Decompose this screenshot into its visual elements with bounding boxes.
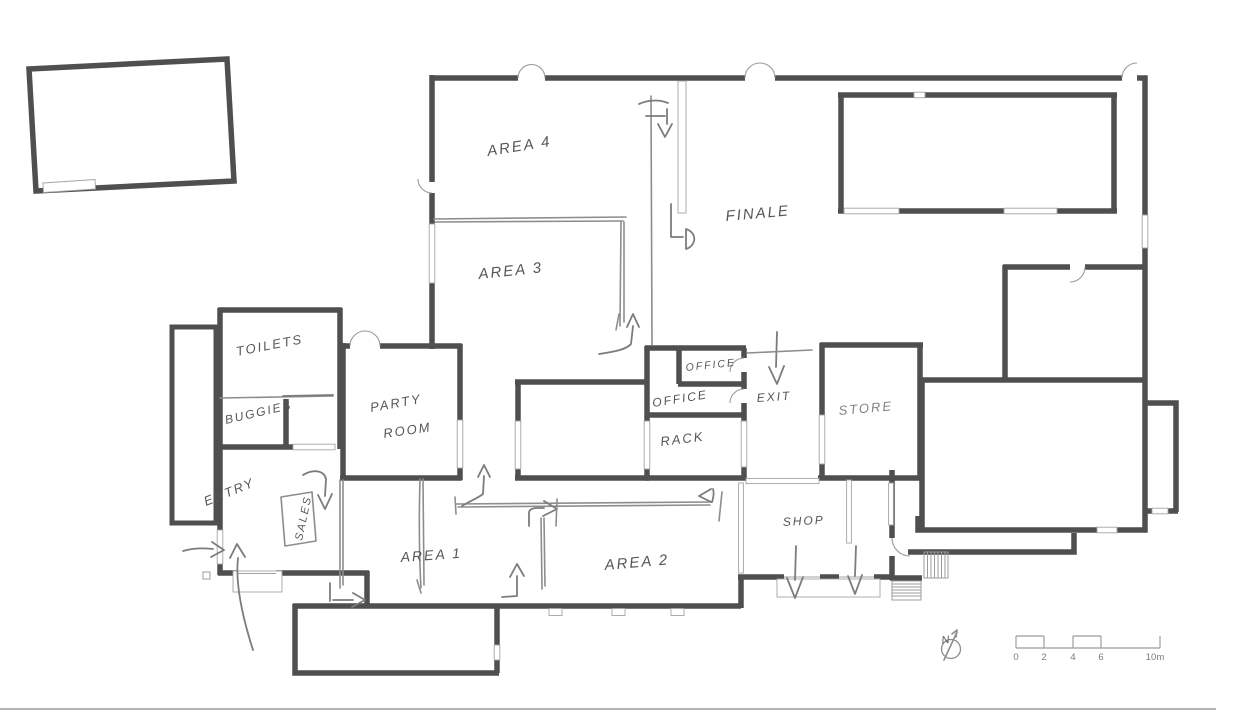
room-label-store: STORE — [838, 398, 894, 418]
scale-bar: 0 2 4 6 10m — [1013, 636, 1164, 663]
north-arrow-label: N — [941, 634, 953, 647]
marker-square — [203, 572, 210, 579]
room-label-toilets: TOILETS — [235, 331, 305, 359]
scale-label-10m: 10m — [1146, 652, 1165, 663]
room-labels: AREA 4 AREA 3 FINALE TOILETS BUGGIES PAR… — [202, 133, 894, 574]
arrow-up-corridor — [462, 476, 484, 506]
arrow-up-area1 — [502, 576, 517, 597]
buggies-divider-sketch — [220, 396, 333, 398]
room-label-rack: RACK — [660, 429, 706, 449]
room-label-area2: AREA 2 — [603, 551, 670, 574]
scale-label-4: 4 — [1070, 652, 1075, 663]
room-label-area3: AREA 3 — [477, 259, 544, 283]
scale-label-0: 0 — [1013, 652, 1018, 663]
scale-label-2: 2 — [1041, 652, 1046, 663]
arrow-down-shop-2 — [855, 546, 856, 576]
arrow-left-route — [699, 489, 711, 502]
arrow-down-shop-1 — [795, 546, 796, 580]
room-label-shop: SHOP — [782, 513, 825, 529]
walls — [218, 75, 1178, 673]
shop-porch — [777, 579, 880, 597]
north-arrow: N — [941, 630, 961, 660]
room-label-party-1: PARTY — [369, 391, 423, 415]
arrow-finale-top — [639, 101, 668, 105]
area3-sketch-line — [434, 217, 626, 219]
sketch-partition-a — [419, 479, 421, 588]
arrow-down-exit — [776, 332, 777, 367]
floor-plan-drawing: AREA 4 AREA 3 FINALE TOILETS BUGGIES PAR… — [0, 0, 1240, 714]
sketch-partition-b — [541, 518, 542, 589]
finale-partition — [678, 81, 686, 213]
room-label-sales: SALES — [293, 495, 314, 542]
room-label-entry: ENTRY — [202, 475, 257, 509]
route-line — [456, 502, 712, 504]
room-label-office-lower: OFFICE — [651, 387, 709, 410]
entry-vestibule — [233, 571, 282, 592]
room-label-area1: AREA 1 — [399, 545, 462, 565]
arrow-down-finale — [658, 124, 672, 137]
door-arcs — [350, 63, 1137, 556]
room-label-exit: EXIT — [756, 389, 792, 405]
scale-label-6: 6 — [1098, 652, 1103, 663]
arrow-right-entry — [183, 548, 213, 551]
pencil-annotations — [183, 96, 862, 650]
outbuilding — [29, 59, 234, 193]
room-label-party-2: ROOM — [382, 419, 432, 441]
room-label-office-upper: OFFICE — [685, 357, 736, 374]
floor-plan-canvas: AREA 4 AREA 3 FINALE TOILETS BUGGIES PAR… — [0, 0, 1240, 714]
room-label-buggies: BUGGIES — [224, 398, 294, 427]
finale-divider-sketch — [651, 96, 652, 345]
room-label-area4: AREA 4 — [485, 133, 553, 160]
room-label-finale: FINALE — [725, 202, 791, 225]
